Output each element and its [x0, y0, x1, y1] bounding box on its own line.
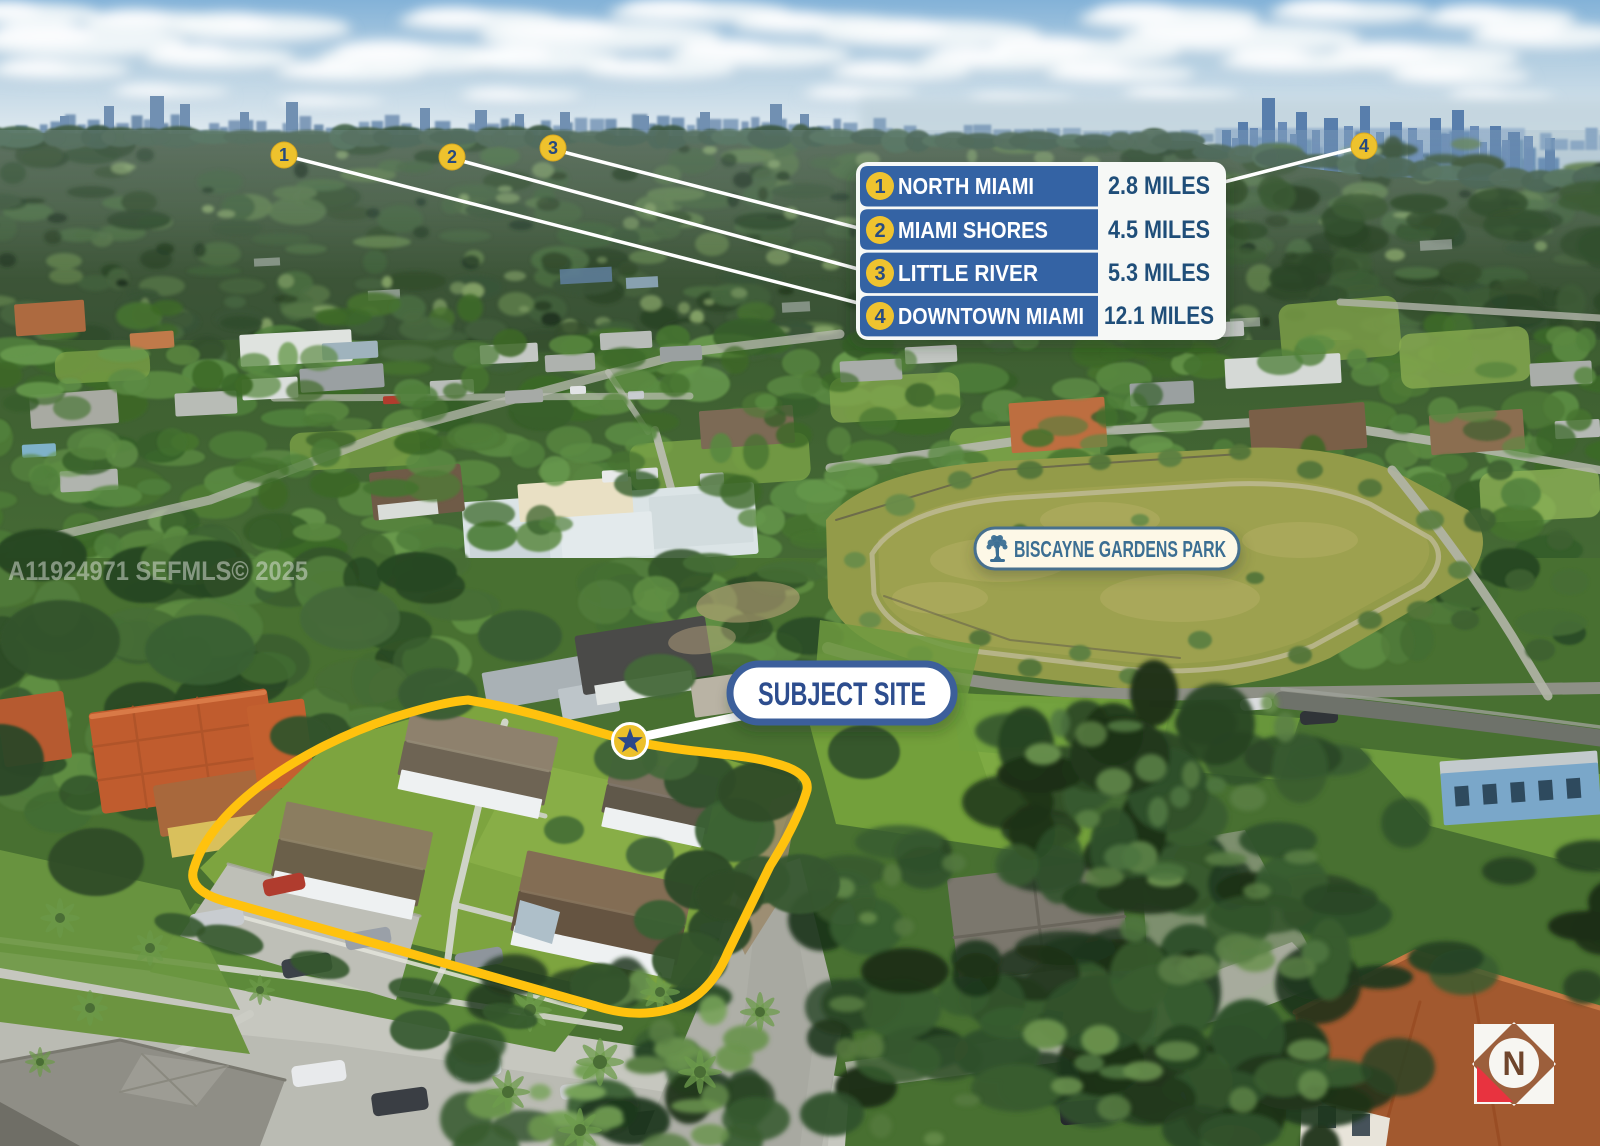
svg-text:3: 3	[874, 263, 885, 285]
svg-text:4.5 MILES: 4.5 MILES	[1108, 216, 1210, 244]
svg-text:5.3 MILES: 5.3 MILES	[1108, 259, 1210, 287]
svg-text:A11924971 SEFMLS© 2025: A11924971 SEFMLS© 2025	[8, 556, 308, 586]
svg-text:3: 3	[548, 138, 558, 158]
svg-text:SUBJECT SITE: SUBJECT SITE	[758, 676, 926, 712]
svg-text:2: 2	[874, 220, 885, 242]
svg-text:MIAMI SHORES: MIAMI SHORES	[898, 217, 1048, 243]
svg-text:2.8 MILES: 2.8 MILES	[1108, 172, 1210, 200]
svg-text:DOWNTOWN MIAMI: DOWNTOWN MIAMI	[898, 303, 1084, 329]
svg-text:BISCAYNE GARDENS PARK: BISCAYNE GARDENS PARK	[1014, 536, 1226, 562]
svg-text:4: 4	[874, 306, 886, 328]
svg-text:LITTLE RIVER: LITTLE RIVER	[898, 260, 1038, 286]
svg-text:4: 4	[1359, 136, 1369, 156]
svg-text:NORTH MIAMI: NORTH MIAMI	[898, 173, 1034, 199]
svg-text:2: 2	[447, 147, 457, 167]
svg-text:12.1 MILES: 12.1 MILES	[1104, 302, 1214, 330]
svg-text:1: 1	[874, 176, 885, 198]
svg-text:1: 1	[279, 145, 289, 165]
svg-text:N: N	[1503, 1045, 1526, 1083]
